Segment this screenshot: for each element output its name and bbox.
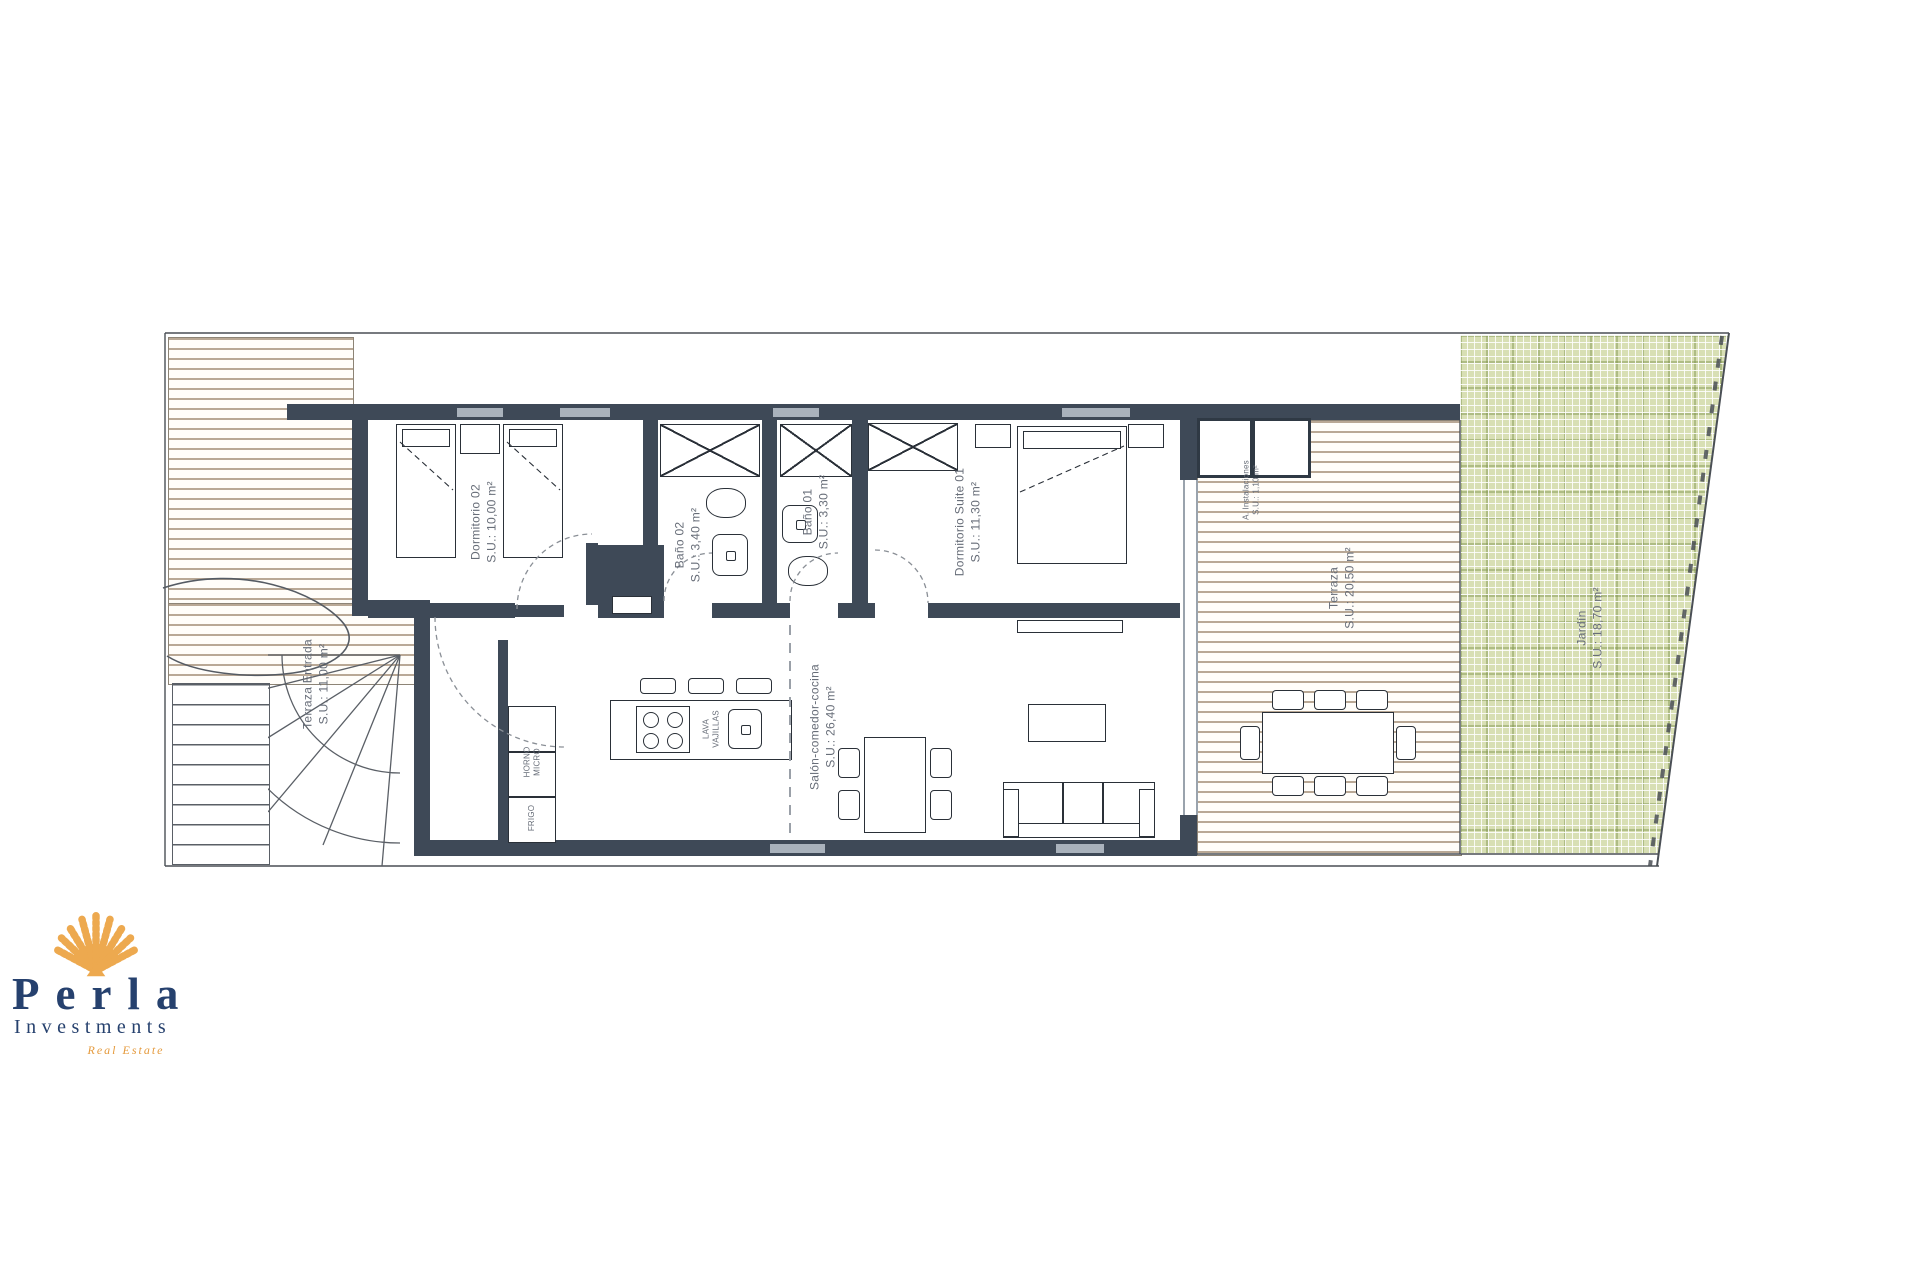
toilet-bano01 xyxy=(788,556,828,586)
room-name: A. Instalaciones xyxy=(1241,460,1251,520)
tv-sideboard xyxy=(1017,620,1123,633)
terrace-chair xyxy=(1396,726,1416,760)
wall-interior-a xyxy=(368,603,515,618)
kitchen-sink xyxy=(728,709,762,749)
wall-interior-e xyxy=(928,603,1180,618)
washbasin-bano02 xyxy=(712,534,748,576)
sofa-seat-divider xyxy=(1102,783,1104,824)
wall-entry-vertical xyxy=(414,616,430,856)
label-terraza: Terraza S.U.: 20,50 m² xyxy=(1326,547,1357,629)
sink-drain xyxy=(741,725,751,735)
room-area: S.U.: 18,70 m² xyxy=(1590,587,1606,669)
terrace-chair xyxy=(1272,690,1304,710)
dining-table xyxy=(864,737,926,833)
dining-chair xyxy=(838,790,860,820)
appliance-text: VAJILLAS xyxy=(711,710,721,747)
room-name: Jardín xyxy=(1574,587,1590,669)
sofa-seat-divider xyxy=(1062,783,1064,824)
sofa-arm xyxy=(1003,789,1019,837)
shower-tray-bano02 xyxy=(660,424,760,477)
terrace-chair xyxy=(1356,776,1388,796)
room-name: Dormitorio Suite 01 xyxy=(952,468,968,576)
wall-left xyxy=(352,404,368,616)
appliance-text: HORNO xyxy=(522,747,532,778)
staircase-straight xyxy=(172,683,270,865)
label-frigo: FRIGO xyxy=(527,805,537,831)
dorm02-door-leaf xyxy=(586,543,598,605)
room-name: Baño 02 xyxy=(672,508,688,583)
terrace-table xyxy=(1262,712,1394,774)
room-area: S.U.: 11,30 m² xyxy=(968,468,984,576)
burner xyxy=(667,733,683,749)
label-bano-01: Baño 01 S.U.: 3,30 m² xyxy=(800,475,831,550)
floorplan-canvas: Dormitorio 02 S.U.: 10,00 m² Baño 02 S.U… xyxy=(0,0,1920,1280)
wardrobe-suite xyxy=(868,423,958,471)
label-dormitorio-suite-01: Dormitorio Suite 01 S.U.: 11,30 m² xyxy=(952,468,983,576)
appliance-text: LAVA xyxy=(701,710,711,747)
shelf-line xyxy=(509,796,555,798)
terrace-chair xyxy=(1356,690,1388,710)
toilet-bano02 xyxy=(706,488,746,518)
bed-single-2 xyxy=(503,424,563,558)
wall-right-lower xyxy=(1180,815,1197,856)
burner xyxy=(643,712,659,728)
room-name: Terraza Entrada xyxy=(300,639,316,729)
wall-kitchen-stub xyxy=(498,640,508,840)
appliance-text: MICRO xyxy=(532,747,542,778)
terrace-chair xyxy=(1272,776,1304,796)
terrace-chair xyxy=(1314,690,1346,710)
dining-chair xyxy=(930,748,952,778)
label-salon-comedor-cocina: Salón-comedor-cocina S.U.: 26,40 m² xyxy=(807,664,838,790)
label-jardin: Jardín S.U.: 18,70 m² xyxy=(1574,587,1605,669)
suite-door-arc xyxy=(875,550,928,603)
sliding-glass-door xyxy=(1183,480,1198,815)
wall-bano02-bano01 xyxy=(762,420,777,605)
room-area: S.U.: 11,00 m² xyxy=(316,639,332,729)
room-name: Salón-comedor-cocina xyxy=(807,664,823,790)
basin-drain xyxy=(726,551,736,561)
shaft-box xyxy=(612,596,652,614)
label-dormitorio-02: Dormitorio 02 S.U.: 10,00 m² xyxy=(468,481,499,563)
pillow xyxy=(509,429,557,447)
room-area: S.U.: 26,40 m² xyxy=(823,664,839,790)
burner xyxy=(667,712,683,728)
pillow xyxy=(402,429,450,447)
wall-interior-d xyxy=(838,603,875,618)
sofa xyxy=(1003,782,1155,838)
wall-hall-stub xyxy=(852,545,868,603)
label-lavavajillas: LAVA VAJILLAS xyxy=(701,710,720,747)
bed-double-suite xyxy=(1017,426,1127,564)
sofa-arm xyxy=(1139,789,1155,837)
label-instalaciones: A. Instalaciones S.U.: 1,10 m² xyxy=(1241,460,1260,520)
terrace-chair xyxy=(1314,776,1346,796)
logo-subtitle: Investments xyxy=(14,1016,224,1039)
bar-stool xyxy=(688,678,724,694)
label-terraza-entrada: Terraza Entrada S.U.: 11,00 m² xyxy=(300,639,331,729)
burner xyxy=(643,733,659,749)
bed-single-1 xyxy=(396,424,456,558)
label-bano-02: Baño 02 S.U.: 3,40 m² xyxy=(672,508,703,583)
window-top-4 xyxy=(1062,408,1130,417)
window-top-3 xyxy=(773,408,819,417)
window-top-1 xyxy=(457,408,503,417)
room-name: Dormitorio 02 xyxy=(468,481,484,563)
appliance-text: FRIGO xyxy=(527,805,537,831)
sofa-back xyxy=(1004,823,1154,837)
room-area: S.U.: 3,30 m² xyxy=(816,475,832,550)
room-area: S.U.: 10,00 m² xyxy=(484,481,500,563)
window-bottom-1 xyxy=(770,844,825,853)
window-bottom-2 xyxy=(1056,844,1104,853)
wall-right-upper xyxy=(1180,420,1197,480)
deck-terraza-entrada-upper xyxy=(168,337,354,605)
pillow xyxy=(1023,431,1121,449)
dining-chair xyxy=(838,748,860,778)
entry-door-leaf xyxy=(500,605,564,617)
label-horno-micro: HORNO MICRO xyxy=(522,747,541,778)
nightstand-suite-left xyxy=(975,424,1011,448)
coffee-table xyxy=(1028,704,1106,742)
logo-name: Perla xyxy=(12,968,222,1020)
cooktop xyxy=(636,706,690,753)
terrace-chair xyxy=(1240,726,1260,760)
room-name: Baño 01 xyxy=(800,475,816,550)
nightstand-suite-right xyxy=(1128,424,1164,448)
bar-stool xyxy=(640,678,676,694)
room-area: S.U.: 3,40 m² xyxy=(688,508,704,583)
window-top-2 xyxy=(560,408,610,417)
room-name: Terraza xyxy=(1326,547,1342,629)
shower-tray-bano01 xyxy=(780,424,852,477)
room-area: S.U.: 20,50 m² xyxy=(1342,547,1358,629)
room-area: S.U.: 1,10 m² xyxy=(1251,460,1261,520)
bar-stool xyxy=(736,678,772,694)
nightstand xyxy=(460,424,500,454)
dining-chair xyxy=(930,790,952,820)
logo-tagline: Real Estate xyxy=(56,1043,196,1058)
wall-interior-c xyxy=(712,603,790,618)
